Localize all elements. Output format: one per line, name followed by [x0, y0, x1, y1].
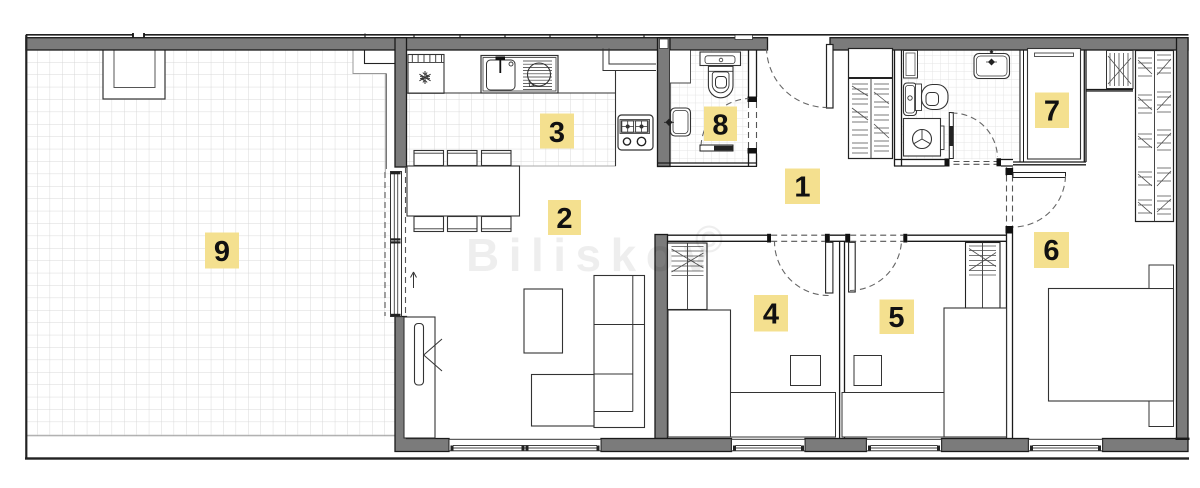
- svg-text:9: 9: [214, 236, 230, 268]
- svg-text:5: 5: [888, 302, 904, 334]
- svg-text:Biliskov: Biliskov: [466, 229, 718, 281]
- svg-text:©: ©: [695, 219, 723, 261]
- svg-text:4: 4: [763, 299, 779, 331]
- svg-text:1: 1: [794, 172, 810, 204]
- svg-text:7: 7: [1044, 96, 1060, 128]
- svg-text:3: 3: [549, 117, 565, 149]
- svg-text:8: 8: [712, 110, 728, 142]
- svg-text:6: 6: [1043, 235, 1059, 267]
